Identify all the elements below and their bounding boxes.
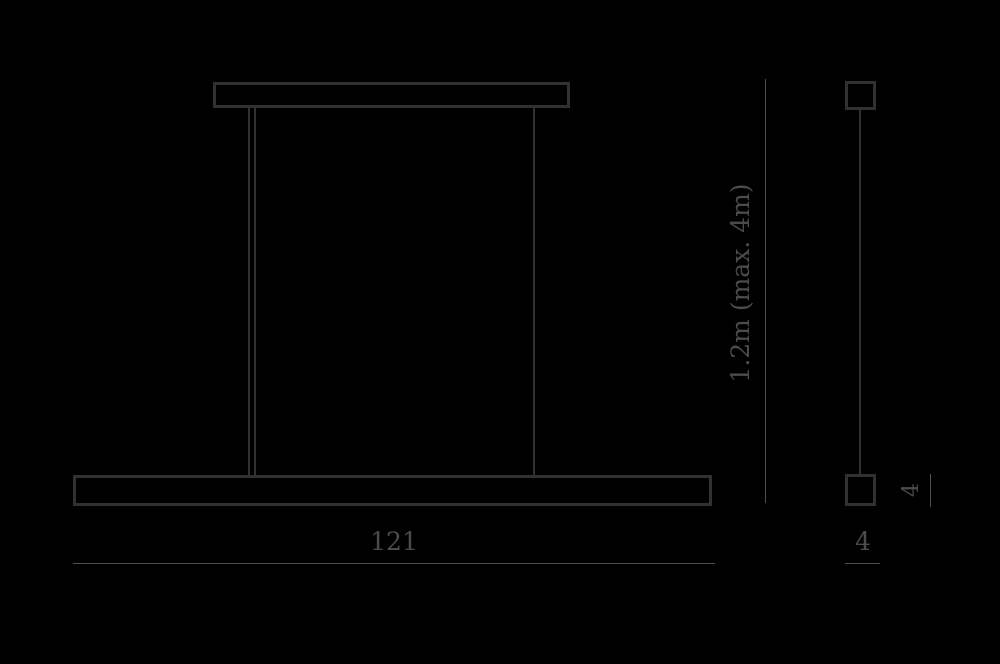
light-bar-side-outline xyxy=(845,474,876,506)
suspension-cable-left-line-1 xyxy=(248,108,250,475)
suspension-cable-left-line-2 xyxy=(254,108,256,475)
canopy-side-outline xyxy=(845,81,876,110)
drop-height-dimension-line xyxy=(765,79,766,503)
width-dimension-label: 121 xyxy=(73,529,715,555)
profile-width-dimension-label: 4 xyxy=(838,529,888,555)
profile-width-dimension-line xyxy=(845,563,880,564)
profile-height-dimension-label: 4 xyxy=(900,470,924,510)
drop-height-dimension-label: 1.2m (max. 4m) xyxy=(728,163,754,403)
canopy-front-outline xyxy=(213,82,570,108)
light-bar-front-outline xyxy=(73,475,712,506)
width-dimension-line xyxy=(73,563,715,564)
dimension-drawing: 121 1.2m (max. 4m) 4 4 xyxy=(0,0,1000,664)
suspension-cable-side xyxy=(859,110,861,474)
profile-height-dimension-line xyxy=(930,474,931,507)
suspension-cable-right xyxy=(533,108,535,475)
